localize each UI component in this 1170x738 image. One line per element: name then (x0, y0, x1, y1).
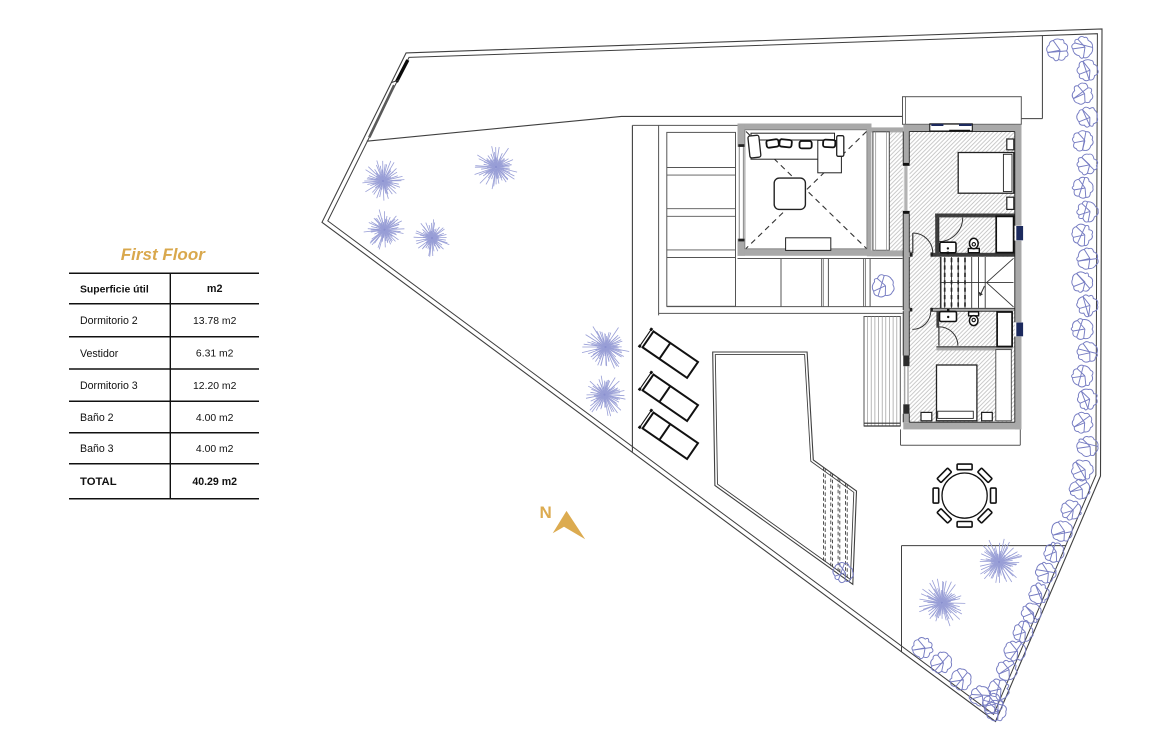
svg-text:First Floor: First Floor (121, 245, 206, 264)
svg-text:N: N (540, 503, 552, 522)
svg-text:Baño 2: Baño 2 (80, 412, 114, 424)
svg-text:4.00 m2: 4.00 m2 (196, 413, 234, 424)
svg-text:4.00 m2: 4.00 m2 (196, 444, 234, 455)
svg-text:Dormitorio 3: Dormitorio 3 (80, 380, 138, 392)
svg-text:13.78 m2: 13.78 m2 (193, 316, 237, 327)
svg-text:6.31 m2: 6.31 m2 (196, 349, 234, 360)
svg-text:40.29 m2: 40.29 m2 (192, 476, 237, 488)
svg-text:Vestidor: Vestidor (80, 348, 119, 360)
svg-text:Superficie útil: Superficie útil (80, 284, 149, 295)
svg-text:12.20 m2: 12.20 m2 (193, 381, 237, 392)
svg-text:TOTAL: TOTAL (80, 476, 117, 488)
svg-text:m2: m2 (207, 283, 223, 295)
svg-text:Dormitorio 2: Dormitorio 2 (80, 315, 138, 327)
svg-text:Baño 3: Baño 3 (80, 443, 114, 455)
